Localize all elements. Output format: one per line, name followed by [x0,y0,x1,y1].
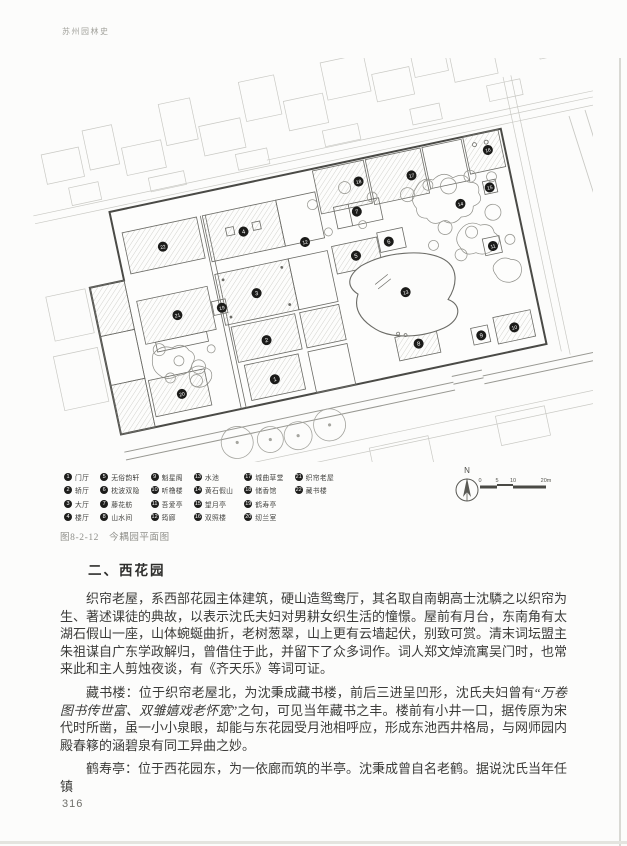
legend-item: 14黄石假山 [194,484,233,498]
canal-trees [218,404,349,462]
legend-item: 16双照楼 [194,511,233,525]
legend-item-label: 水池 [205,472,219,482]
legend-number-badge: 6 [100,486,108,494]
paragraph-segment: 藏书楼：位于织帘老屋北，为沈秉成藏书楼，前后三进呈凹形，沈氏夫妇曾有“ [86,685,541,700]
legend-item-label: 双照楼 [205,512,226,522]
legend-item-label: 鹤寿亭 [255,499,276,509]
legend-item: 10听橹楼 [151,484,183,498]
road-lines [569,110,593,460]
legend-number-badge: 20 [244,513,252,521]
legend-number-badge: 11 [151,500,159,508]
body-text: 织帘老屋，系西部花园主体建筑，硬山造鸳鸯厅，其名取自南朝高士沈驎之以织帘为生、著… [60,590,567,802]
legend-item-label: 织帘老屋 [306,472,334,482]
legend-item-label: 轿厅 [75,485,89,495]
legend-item: 18储香馆 [244,484,283,498]
legend-item-label: 储香馆 [255,485,276,495]
legend-number-badge: 13 [194,473,202,481]
scale-bar: 0 5 10 20m [477,475,555,493]
legend-item-label: 藏书楼 [306,485,327,495]
legend-item-label: 无俗韵轩 [111,472,139,482]
legend-number-badge: 16 [194,513,202,521]
legend-item-label: 枕波双隐 [111,485,139,495]
legend-item: 21织帘老屋 [295,470,334,484]
legend-item-label: 黄石假山 [205,485,233,495]
figure-legend: 1门厅2轿厅3大厅4楼厅5无俗韵轩6枕波双隐7藤花舫8山水间9魁星阁10听橹楼1… [64,470,444,524]
legend-number-badge: 19 [244,500,252,508]
legend-number-badge: 1 [64,473,72,481]
legend-number-badge: 18 [244,486,252,494]
section-heading: 二、西花园 [88,559,166,579]
legend-item: 8山水间 [100,511,139,525]
legend-item-label: 大厅 [75,499,89,509]
legend-item: 22藏书楼 [295,484,334,498]
legend-item: 9魁星阁 [151,470,183,484]
paragraph-zhilian-laowu: 织帘老屋，系西部花园主体建筑，硬山造鸳鸯厅，其名取自南朝高士沈驎之以织帘为生、著… [60,590,567,678]
legend-column: 9魁星阁10听橹楼11吾爱亭12筠廊 [151,470,183,524]
page-edge-right [619,58,621,846]
legend-number-badge: 12 [151,513,159,521]
legend-item: 5无俗韵轩 [100,470,139,484]
legend-item-label: 望月亭 [205,499,226,509]
legend-item: 4楼厅 [64,511,89,525]
legend-number-badge: 5 [100,473,108,481]
figure-caption: 图8-2-12 今耦园平面图 [60,529,170,543]
legend-item: 11吾爱亭 [151,497,183,511]
legend-item: 6枕波双隐 [100,484,139,498]
legend-number-badge: 8 [100,513,108,521]
svg-text:20m: 20m [541,478,552,484]
running-head: 苏州园林史 [62,26,110,37]
legend-column: 5无俗韵轩6枕波双隐7藤花舫8山水间 [100,470,139,524]
legend-number-badge: 4 [64,513,72,521]
plan-rotated: 12345678910111213141516171819202122 [33,58,593,462]
book-page: 苏州园林史 [0,0,627,846]
legend-number-badge: 22 [295,486,303,494]
legend-number-badge: 2 [64,486,72,494]
legend-column: 17城曲草堂18储香馆19鹤寿亭20纫兰室 [244,470,283,524]
paragraph-cangshulou: 藏书楼：位于织帘老屋北，为沈秉成藏书楼，前后三进呈凹形，沈氏夫妇曾有“万卷图书传… [60,684,567,754]
legend-item-label: 门厅 [75,472,89,482]
paragraph-heshouting: 鹤寿亭：位于西花园东，为一依廊而筑的半亭。沈秉成曾自名老鹤。据说沈氏当年任镇 [60,760,567,795]
page-number: 316 [62,798,83,810]
legend-item-label: 听橹楼 [162,485,183,495]
legend-item: 19鹤寿亭 [244,497,283,511]
legend-number-badge: 7 [100,500,108,508]
legend-number-badge: 14 [194,486,202,494]
garden-plan-figure: 12345678910111213141516171819202122 [33,58,593,462]
legend-item-label: 筠廊 [162,512,176,522]
legend-item: 20纫兰室 [244,511,283,525]
legend-item-label: 山水间 [111,512,132,522]
legend-number-badge: 10 [151,486,159,494]
legend-number-badge: 15 [194,500,202,508]
legend-column: 21织帘老屋22藏书楼 [295,470,334,497]
svg-text:0: 0 [478,478,481,484]
legend-item: 12筠廊 [151,511,183,525]
legend-column: 1门厅2轿厅3大厅4楼厅 [64,470,89,524]
legend-item-label: 藤花舫 [111,499,132,509]
legend-item: 13水池 [194,470,233,484]
legend-item-label: 纫兰室 [255,512,276,522]
legend-number-badge: 17 [244,473,252,481]
legend-number-badge: 3 [64,500,72,508]
legend-item-label: 吾爱亭 [162,499,183,509]
legend-item-label: 楼厅 [75,512,89,522]
page-edge-bottom [0,841,627,844]
legend-number-badge: 21 [295,473,303,481]
legend-item: 2轿厅 [64,484,89,498]
legend-item: 17城曲草堂 [244,470,283,484]
legend-item: 15望月亭 [194,497,233,511]
svg-text:N: N [464,466,470,475]
legend-item: 1门厅 [64,470,89,484]
legend-item: 7藤花舫 [100,497,139,511]
legend-column: 13水池14黄石假山15望月亭16双照楼 [194,470,233,524]
svg-text:5: 5 [495,478,498,484]
legend-item-label: 城曲草堂 [255,472,283,482]
legend-item: 3大厅 [64,497,89,511]
legend-item-label: 魁星阁 [162,472,183,482]
legend-number-badge: 9 [151,473,159,481]
svg-text:10: 10 [510,478,516,484]
